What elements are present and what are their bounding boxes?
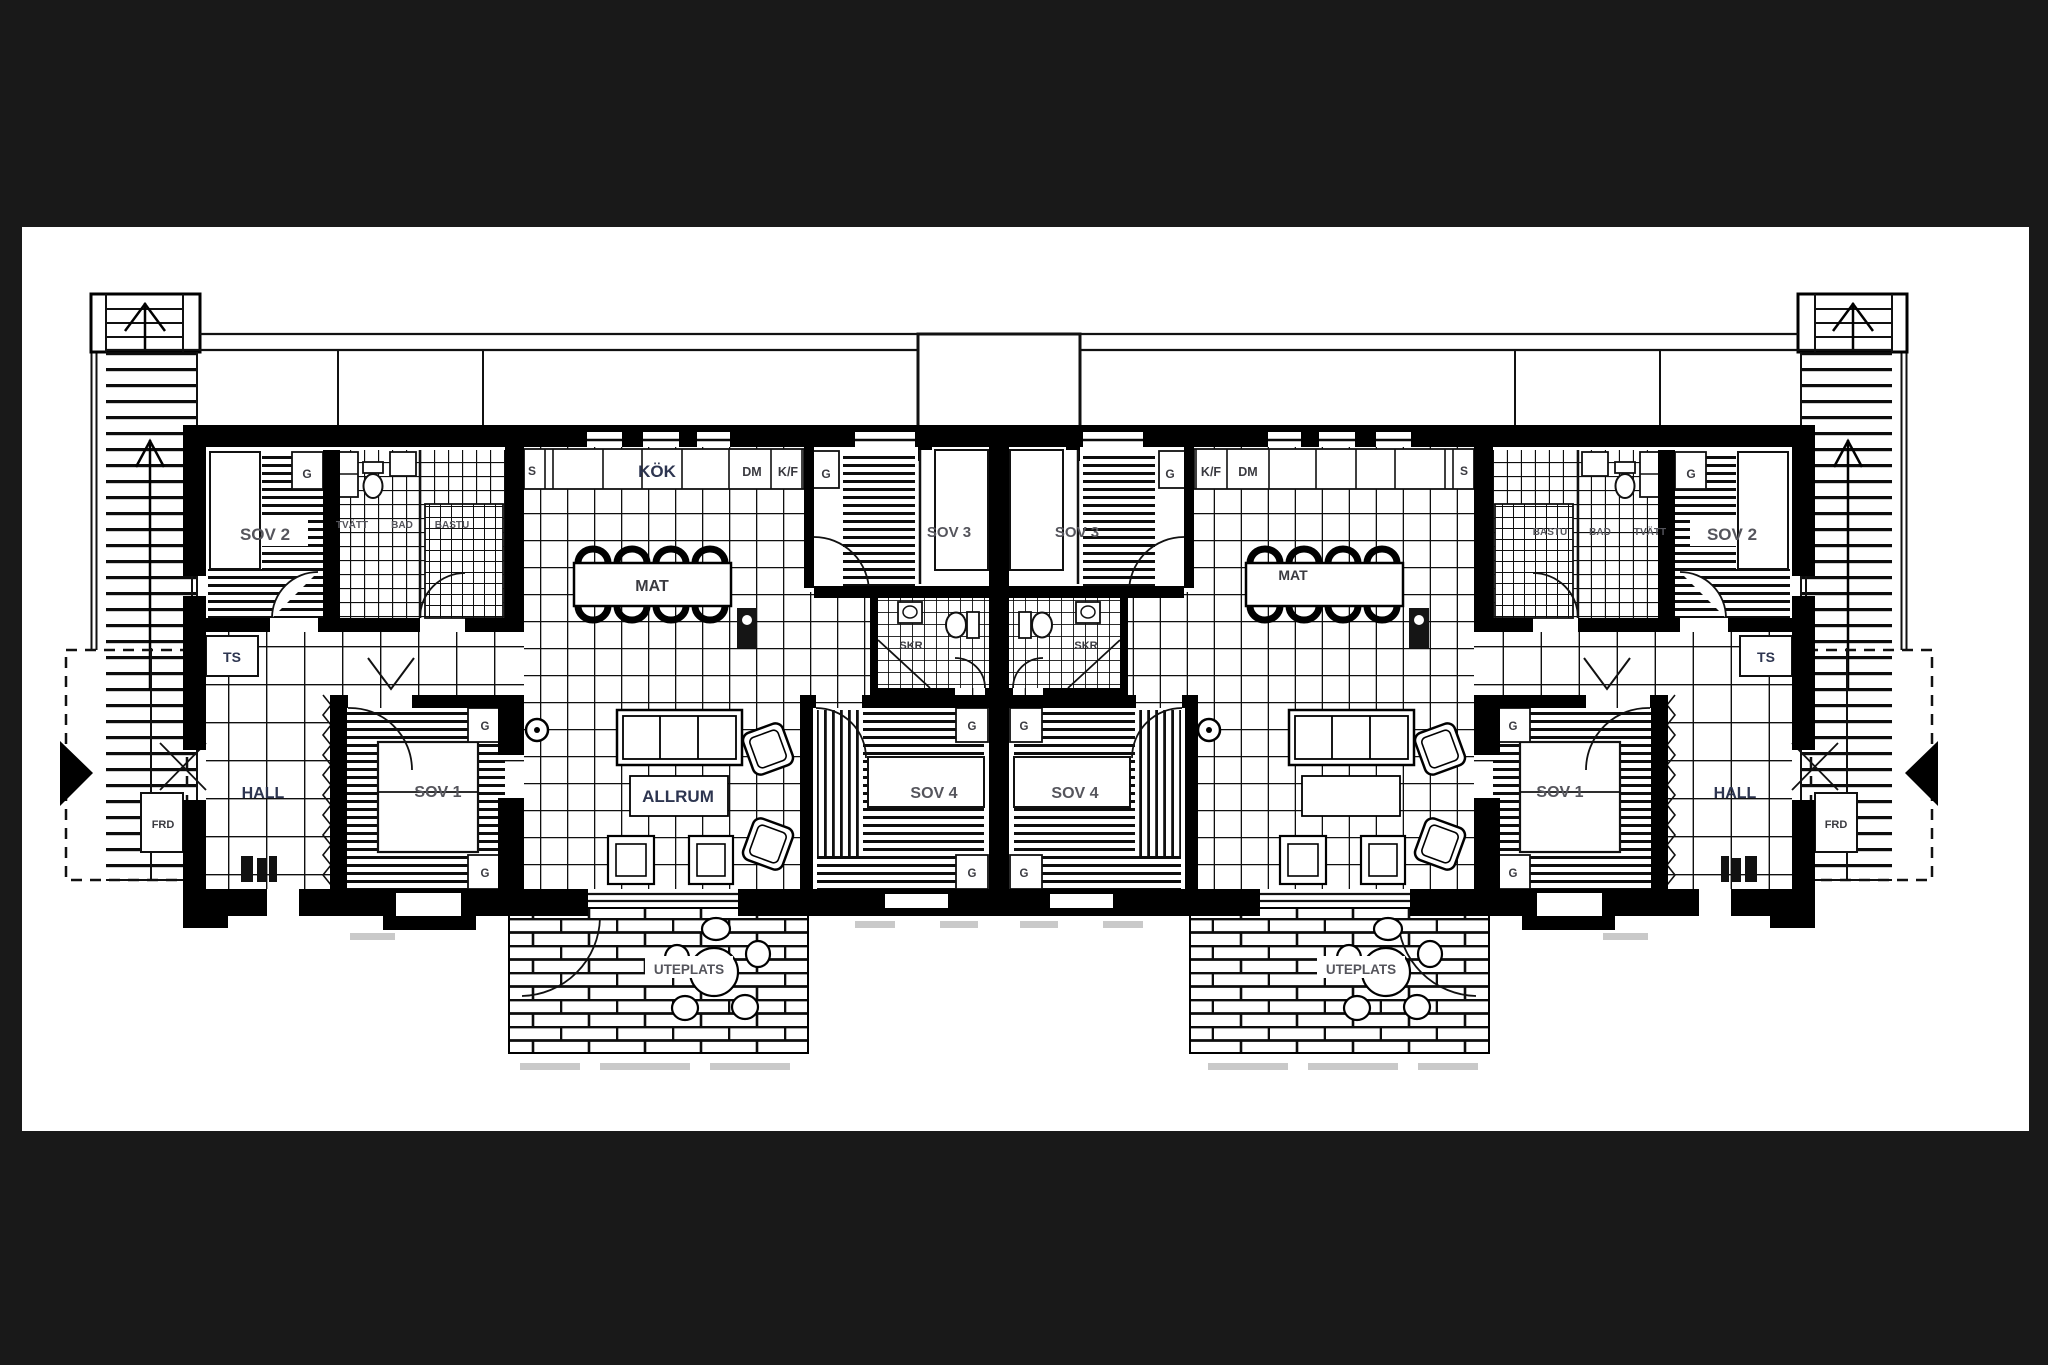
svg-text:HALL: HALL bbox=[1714, 785, 1757, 802]
svg-text:G: G bbox=[1165, 467, 1174, 481]
svg-text:SOV 2: SOV 2 bbox=[1707, 525, 1757, 544]
svg-text:K/F: K/F bbox=[1201, 465, 1222, 479]
svg-text:SOV 3: SOV 3 bbox=[927, 524, 971, 541]
svg-text:SOV 3: SOV 3 bbox=[1055, 524, 1099, 541]
svg-text:G: G bbox=[481, 721, 490, 733]
svg-text:G: G bbox=[1020, 721, 1029, 733]
svg-text:BASTU: BASTU bbox=[435, 520, 469, 531]
svg-text:SKR: SKR bbox=[899, 640, 922, 652]
svg-text:G: G bbox=[968, 868, 977, 880]
svg-text:BAD: BAD bbox=[391, 520, 413, 531]
svg-text:K/F: K/F bbox=[778, 465, 799, 479]
svg-text:S: S bbox=[528, 464, 536, 478]
svg-text:FRD: FRD bbox=[1825, 819, 1848, 831]
svg-text:G: G bbox=[968, 721, 977, 733]
svg-text:G: G bbox=[481, 868, 490, 880]
svg-text:TS: TS bbox=[1757, 649, 1775, 665]
svg-text:SOV 1: SOV 1 bbox=[414, 784, 461, 801]
svg-text:G: G bbox=[821, 467, 830, 481]
svg-text:TVÄTT: TVÄTT bbox=[1634, 525, 1666, 538]
svg-text:BAD: BAD bbox=[1589, 527, 1611, 538]
svg-text:G: G bbox=[1020, 868, 1029, 880]
svg-text:S: S bbox=[1460, 464, 1468, 478]
svg-text:HALL: HALL bbox=[242, 785, 285, 802]
svg-text:DM: DM bbox=[1238, 465, 1257, 479]
svg-text:TS: TS bbox=[223, 649, 241, 665]
svg-text:MAT: MAT bbox=[635, 578, 669, 595]
svg-text:SOV 4: SOV 4 bbox=[1051, 785, 1098, 802]
svg-text:FRD: FRD bbox=[152, 819, 175, 831]
svg-text:BASTU: BASTU bbox=[1533, 527, 1567, 538]
svg-text:G: G bbox=[302, 467, 311, 481]
svg-text:G: G bbox=[1686, 467, 1695, 481]
svg-text:TVÄTT: TVÄTT bbox=[336, 518, 368, 531]
svg-text:SOV 2: SOV 2 bbox=[240, 525, 290, 544]
svg-text:G: G bbox=[1509, 721, 1518, 733]
svg-text:SOV 4: SOV 4 bbox=[910, 785, 957, 802]
svg-text:G: G bbox=[1509, 868, 1518, 880]
svg-text:DM: DM bbox=[742, 465, 761, 479]
svg-text:KÖK: KÖK bbox=[638, 462, 677, 481]
svg-text:SOV 1: SOV 1 bbox=[1536, 784, 1583, 801]
svg-text:UTEPLATS: UTEPLATS bbox=[1326, 962, 1396, 977]
svg-text:UTEPLATS: UTEPLATS bbox=[654, 962, 724, 977]
svg-text:SKR: SKR bbox=[1074, 640, 1097, 652]
svg-text:MAT: MAT bbox=[1278, 567, 1308, 583]
svg-text:ALLRUM: ALLRUM bbox=[642, 787, 714, 806]
